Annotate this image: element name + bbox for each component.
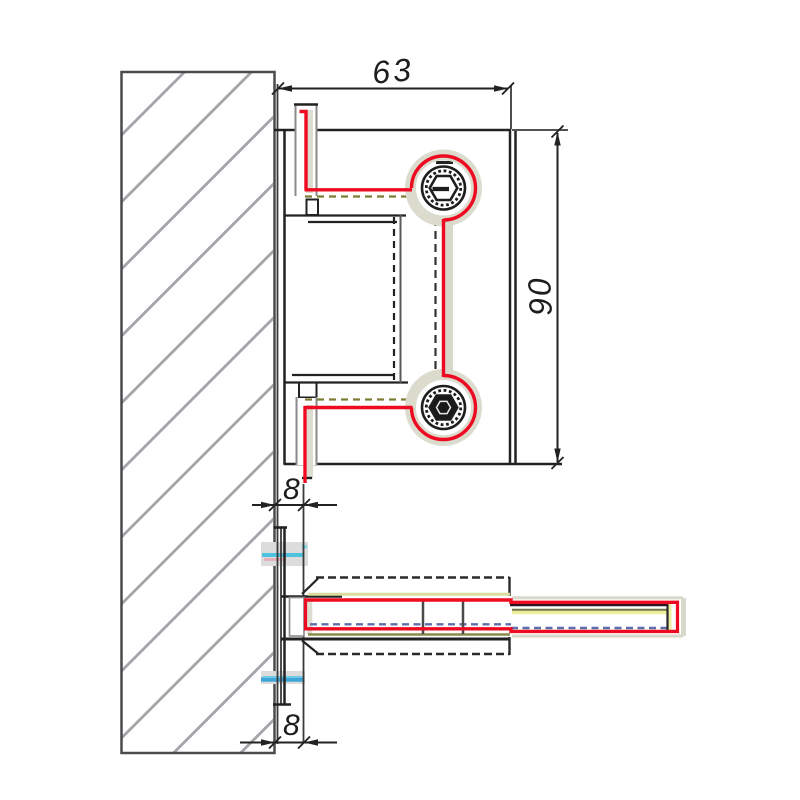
svg-text:90: 90 (521, 275, 559, 316)
svg-text:8: 8 (283, 473, 300, 506)
svg-text:63: 63 (371, 51, 416, 90)
svg-text:8: 8 (283, 709, 300, 742)
